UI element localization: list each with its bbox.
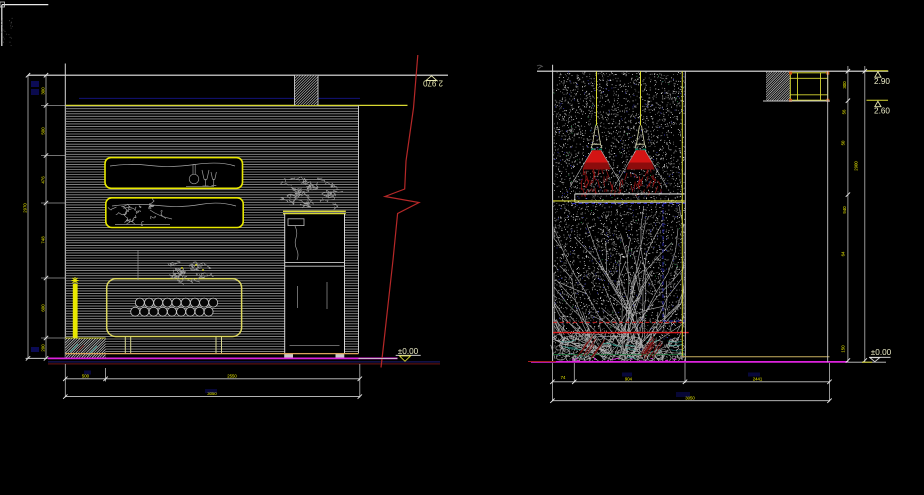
svg-text:500: 500 <box>41 127 46 135</box>
svg-text:600: 600 <box>41 304 46 312</box>
svg-text:2.60: 2.60 <box>874 107 890 116</box>
svg-text:200: 200 <box>41 344 46 352</box>
svg-text:940: 940 <box>842 206 847 214</box>
svg-text:2.90: 2.90 <box>874 77 890 86</box>
svg-text:2.970: 2.970 <box>422 79 443 88</box>
svg-text:2900: 2900 <box>854 161 859 171</box>
svg-text:300: 300 <box>41 87 46 95</box>
svg-text:748: 748 <box>41 236 46 244</box>
svg-text:50: 50 <box>841 140 846 145</box>
svg-text:2970: 2970 <box>23 203 28 213</box>
svg-text:476: 476 <box>41 176 46 184</box>
svg-text:300: 300 <box>842 81 847 89</box>
svg-text:150: 150 <box>841 345 846 353</box>
svg-text:±0.00: ±0.00 <box>398 347 419 356</box>
svg-text:64: 64 <box>841 251 846 256</box>
svg-text:2441: 2441 <box>753 377 763 382</box>
svg-text:56: 56 <box>842 109 847 114</box>
svg-text:±0.00: ±0.00 <box>871 348 892 357</box>
svg-text:904: 904 <box>625 377 633 382</box>
svg-text:74: 74 <box>561 375 566 380</box>
svg-text:2550: 2550 <box>227 374 237 379</box>
